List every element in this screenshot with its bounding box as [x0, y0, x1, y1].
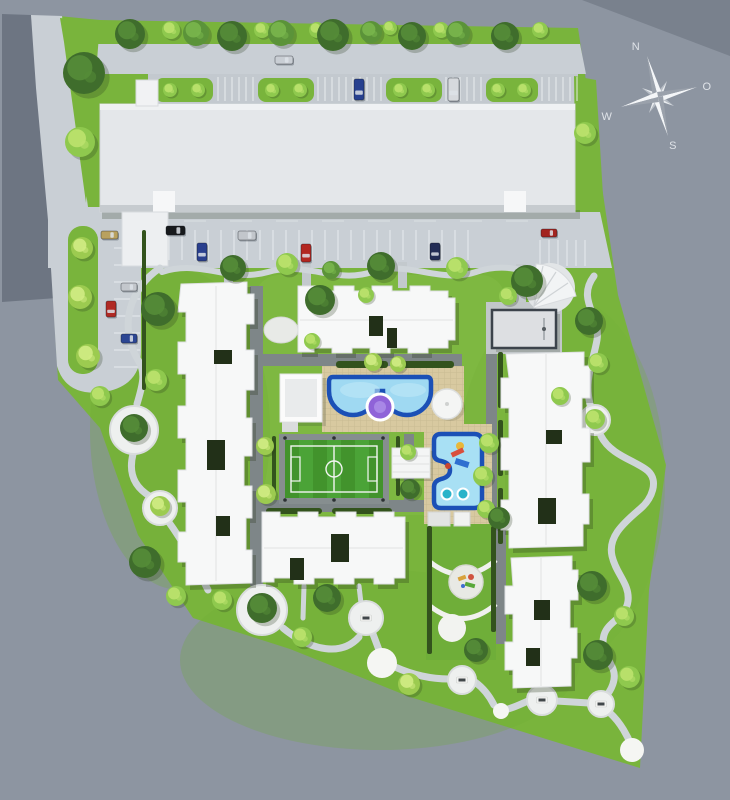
play-equipment	[461, 584, 465, 588]
clubhouse-roof-inner	[285, 379, 317, 417]
bench-seat	[598, 703, 605, 706]
tree-canopy-texture	[171, 29, 176, 34]
tree-canopy-texture	[302, 636, 308, 642]
tree-canopy-texture	[410, 488, 416, 494]
hedges	[491, 526, 496, 632]
residential-buildings	[214, 350, 232, 364]
tree-canopy-texture	[381, 265, 389, 273]
residential-buildings	[538, 498, 556, 524]
car-windshield	[176, 227, 180, 234]
tree-canopy-texture	[629, 676, 635, 682]
cart-canopy	[136, 80, 158, 106]
residential-buildings	[290, 558, 304, 580]
tree-canopy-texture	[483, 475, 489, 481]
tree-canopy-texture	[412, 35, 420, 43]
path-nodes	[367, 648, 397, 678]
tree-canopy-texture	[134, 427, 142, 435]
car	[430, 243, 440, 260]
soccer-field	[279, 434, 389, 504]
residential-buildings	[534, 600, 550, 620]
tree-canopy-texture	[196, 32, 203, 39]
soccer-field	[341, 440, 355, 498]
tree-canopy-texture	[458, 32, 465, 39]
amenity-structures	[542, 327, 546, 331]
tree-canopy-texture	[499, 517, 505, 523]
tree-canopy-texture	[560, 395, 565, 400]
pergola	[454, 512, 470, 526]
car	[354, 79, 364, 100]
tree-canopy-texture	[390, 27, 394, 31]
render-root	[0, 0, 730, 800]
car	[166, 226, 185, 235]
pergola	[428, 512, 450, 526]
soccer-field	[355, 440, 369, 498]
tree-canopy-texture	[130, 33, 138, 41]
tree-canopy-texture	[262, 607, 270, 615]
tree-canopy-texture	[331, 269, 336, 274]
residential-buildings	[546, 430, 562, 444]
tree-canopy-texture	[441, 29, 445, 33]
car	[106, 301, 116, 317]
spa-seat	[442, 489, 453, 500]
spa-seat	[458, 489, 469, 500]
hedges	[427, 526, 432, 654]
fence-post	[332, 436, 336, 440]
gazebo-peak	[445, 402, 449, 406]
tree-canopy-texture	[156, 379, 162, 385]
tree-canopy-texture	[233, 267, 240, 274]
tree-canopy-texture	[428, 89, 432, 93]
tree-canopy-texture	[373, 361, 378, 366]
car-windshield	[355, 91, 363, 95]
play-equipment	[468, 574, 474, 580]
compass-label-e: O	[702, 81, 711, 93]
spa-inner	[374, 401, 386, 413]
soccer-field	[299, 440, 313, 498]
tree-canopy-texture	[80, 296, 87, 303]
tree-canopy-texture	[262, 29, 266, 33]
tree-canopy-texture	[400, 89, 404, 93]
soccer-field	[369, 440, 383, 498]
car-windshield	[550, 230, 553, 236]
tree-canopy-texture	[320, 299, 328, 307]
tree-canopy-texture	[145, 560, 154, 569]
tree-canopy-texture	[409, 683, 415, 689]
tree-canopy-texture	[598, 362, 604, 368]
water-toy	[445, 463, 451, 469]
commercial-entrance	[504, 191, 526, 212]
car-windshield	[130, 284, 133, 290]
garden-paths	[303, 586, 304, 618]
tree-canopy-texture	[527, 279, 536, 288]
tree-canopy-texture	[160, 505, 166, 511]
clubhouse-annex	[282, 422, 298, 432]
car-windshield	[431, 252, 439, 255]
fence-post	[283, 498, 287, 502]
tree-canopy-texture	[598, 654, 606, 662]
tree-canopy-texture	[505, 35, 513, 43]
tree-canopy-texture	[589, 320, 597, 328]
bench-seat	[539, 699, 546, 702]
residential-buildings	[216, 516, 230, 536]
tree-canopy-texture	[366, 294, 370, 298]
tree-canopy-texture	[524, 89, 528, 93]
commercial-entrance	[153, 191, 175, 212]
tree-canopy-texture	[198, 89, 202, 93]
car	[238, 231, 256, 240]
tree-canopy-texture	[489, 442, 495, 448]
tree-canopy-texture	[585, 132, 591, 138]
residential-buildings	[207, 440, 225, 470]
car	[121, 283, 137, 291]
car	[301, 244, 311, 262]
tree-canopy-texture	[281, 32, 288, 39]
tree-canopy-texture	[222, 599, 228, 605]
tree-canopy-texture	[88, 355, 95, 362]
tree-canopy-texture	[592, 585, 600, 593]
tree-canopy-texture	[158, 307, 168, 317]
tree-canopy-texture	[498, 89, 502, 93]
residential-buildings	[331, 534, 349, 562]
tree-canopy-texture	[80, 141, 88, 149]
fence-post	[381, 436, 385, 440]
car	[101, 231, 118, 239]
car	[275, 56, 293, 64]
tree-canopy-texture	[476, 649, 483, 656]
compass-label-w: W	[602, 111, 613, 123]
tree-canopy-texture	[266, 493, 272, 499]
residential-buildings	[369, 316, 383, 336]
seating-pad	[438, 614, 466, 642]
compass-label-n: N	[632, 41, 640, 53]
tree-canopy-texture	[300, 89, 304, 93]
fence-post	[332, 498, 336, 502]
site-plan-rendering: NOSW	[0, 0, 730, 800]
tree-canopy-texture	[595, 418, 601, 424]
fence-post	[283, 436, 287, 440]
playground	[426, 512, 496, 660]
soccer-field	[313, 440, 327, 498]
site-plan-canvas: NOSW	[0, 0, 730, 800]
bench-seat	[363, 617, 370, 620]
tree-canopy-texture	[333, 33, 342, 42]
car-windshield	[248, 232, 252, 239]
tree-canopy-texture	[408, 451, 412, 455]
car	[121, 334, 137, 343]
tree-canopy-texture	[170, 89, 174, 93]
pool-water-highlight	[390, 383, 426, 397]
soccer-field	[285, 440, 299, 498]
entry-walk	[302, 262, 311, 288]
car-windshield	[198, 253, 206, 257]
covered-court	[492, 310, 556, 348]
swimming-pool	[329, 377, 431, 420]
tree-canopy-texture	[232, 35, 240, 43]
tree-canopy-texture	[312, 340, 316, 344]
residential-buildings	[526, 648, 540, 666]
tree-canopy-texture	[371, 31, 377, 37]
path-nodes	[620, 738, 644, 762]
tree-canopy-texture	[540, 29, 544, 33]
tree-canopy-texture	[457, 267, 463, 273]
car	[541, 229, 557, 237]
car-windshield	[302, 254, 310, 258]
tree-canopy-texture	[508, 295, 513, 300]
commercial-roof-ridge	[100, 104, 575, 110]
path-nodes	[493, 703, 509, 719]
car-windshield	[449, 91, 458, 96]
car	[197, 243, 207, 261]
car-windshield	[107, 310, 115, 313]
car-windshield	[130, 335, 133, 342]
tree-canopy-texture	[100, 395, 106, 401]
tree-canopy-texture	[272, 89, 276, 93]
car	[448, 78, 459, 101]
tree-canopy-texture	[398, 363, 402, 367]
tree-canopy-texture	[287, 263, 293, 269]
compass-label-s: S	[669, 140, 677, 152]
tree-canopy-texture	[84, 71, 96, 83]
fence-post	[381, 498, 385, 502]
event-plaza	[264, 317, 298, 343]
bench-seat	[459, 679, 466, 682]
tree-canopy-texture	[82, 247, 88, 253]
car-windshield	[285, 57, 289, 63]
tree-canopy-texture	[327, 597, 335, 605]
tree-canopy-texture	[624, 615, 630, 621]
tree-canopy-texture	[176, 595, 182, 601]
tree-canopy-texture	[265, 445, 270, 450]
residential-buildings	[387, 328, 397, 348]
car-windshield	[110, 232, 113, 238]
garden-paths	[556, 701, 589, 703]
